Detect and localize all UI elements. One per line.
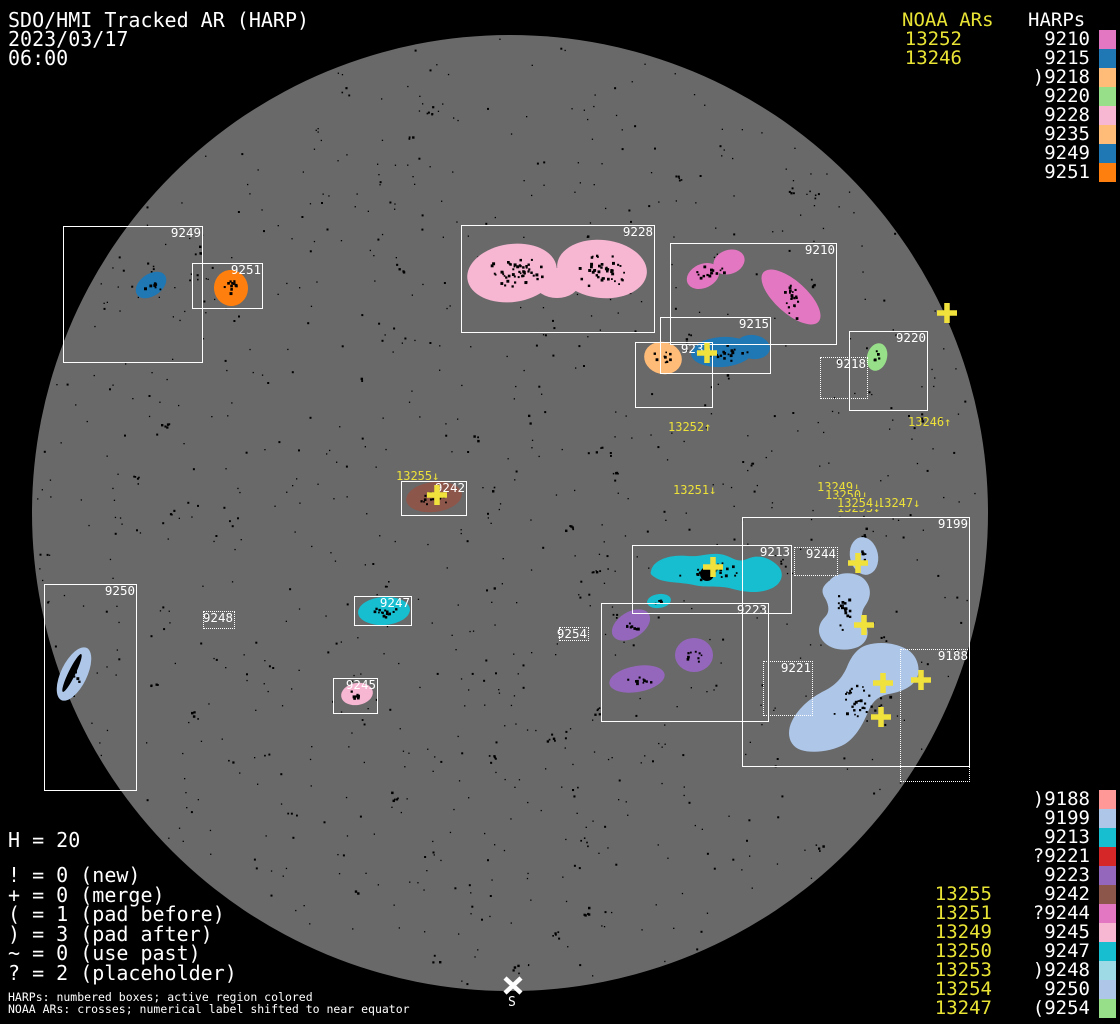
flag-legend: ! = 0 (new)+ = 0 (merge)( = 1 (pad befor… <box>8 866 237 983</box>
harp-box-label: 9242 <box>435 482 465 494</box>
legend-harp-number: (9254 <box>992 999 1090 1018</box>
harp-color-swatch <box>1099 828 1116 847</box>
harp-box-label: 9244 <box>806 548 836 560</box>
harp-box-label: 9215 <box>739 318 769 330</box>
harp-solar-plot: SDO/HMI Tracked AR (HARP) 2023/03/17 06:… <box>0 0 1120 1024</box>
harp-box-9249: 9249 <box>63 226 203 363</box>
harp-box-label: 9251 <box>231 264 261 276</box>
harp-color-swatch <box>1099 980 1116 999</box>
harp-color-swatch <box>1099 790 1116 809</box>
harp-color-swatch <box>1099 809 1116 828</box>
flag-legend-line: ? = 2 (placeholder) <box>8 964 237 984</box>
harp-color-swatch <box>1099 106 1116 125</box>
harp-box-9254: 9254 <box>559 627 589 641</box>
harp-box-9188: 9188 <box>900 649 970 782</box>
legend-noaa-number <box>859 68 962 87</box>
harp-box-9245: 9245 <box>333 678 378 714</box>
noaa-ar-label: 13246↑ <box>908 416 951 428</box>
harp-box-label: 9199 <box>938 518 968 530</box>
harp-legend-top: 132529210132469215)921892209228923592499… <box>859 30 1116 182</box>
harp-box-label: 9228 <box>623 226 653 238</box>
legend-row: 9251 <box>859 163 1116 182</box>
harp-box-9235: 9235 <box>635 342 713 408</box>
harp-color-swatch <box>1099 961 1116 980</box>
harp-box-9250: 9250 <box>44 584 137 791</box>
legend-noaa-number: 13246 <box>859 49 962 68</box>
legend-row: 13247(9254 <box>889 999 1116 1018</box>
legend-noaa-number <box>889 790 992 809</box>
noaa-ar-label: 13252↑ <box>668 421 711 433</box>
harp-box-label: 9254 <box>557 628 587 640</box>
noaa-ar-label: 13255↓ <box>396 470 439 482</box>
harp-color-swatch <box>1099 866 1116 885</box>
harp-box-label: 9188 <box>938 650 968 662</box>
legend-noaa-number: 13247 <box>889 999 992 1018</box>
harp-legend-bottom: )918891999213?9221922313255924213251?924… <box>889 790 1116 1018</box>
legend-noaa-number <box>859 125 962 144</box>
time-label: 06:00 <box>8 49 68 68</box>
harp-box-label: 9235 <box>681 343 711 355</box>
south-pole-label: S <box>508 996 516 1009</box>
harp-color-swatch <box>1099 942 1116 961</box>
footnotes: HARPs: numbered boxes; active region col… <box>8 991 410 1015</box>
harp-color-swatch <box>1099 144 1116 163</box>
harp-box-label: 9248 <box>203 612 233 624</box>
harp-color-swatch <box>1099 163 1116 182</box>
harp-box-label: 9221 <box>781 662 811 674</box>
harp-box-label: 9220 <box>896 332 926 344</box>
noaa-ar-label: 13251↓ <box>673 484 716 496</box>
legend-noaa-number <box>859 106 962 125</box>
harp-color-swatch <box>1099 923 1116 942</box>
harp-box-9251: 9251 <box>192 263 263 309</box>
legend-noaa-number <box>859 87 962 106</box>
harp-box-9221: 9221 <box>763 661 813 716</box>
legend-noaa-number <box>859 144 962 163</box>
harp-box-label: 9210 <box>805 244 835 256</box>
harp-color-swatch <box>1099 904 1116 923</box>
harp-color-swatch <box>1099 125 1116 144</box>
harp-color-swatch <box>1099 999 1116 1018</box>
annotation-overlay: SDO/HMI Tracked AR (HARP) 2023/03/17 06:… <box>0 0 1120 1024</box>
harp-color-swatch <box>1099 49 1116 68</box>
harp-box-9244: 9244 <box>794 547 838 576</box>
harp-box-label: 9247 <box>380 597 410 609</box>
harp-count-line: H = 20 <box>8 831 80 851</box>
legend-noaa-number <box>859 163 962 182</box>
harp-box-label: 9250 <box>105 585 135 597</box>
harp-box-9218: 9218 <box>820 357 868 399</box>
harp-color-swatch <box>1099 30 1116 49</box>
harp-color-swatch <box>1099 885 1116 904</box>
harp-box-9228: 9228 <box>461 225 655 333</box>
harp-box-9242: 9242 <box>401 481 467 516</box>
legend-noaa-number <box>889 828 992 847</box>
harp-box-label: 9218 <box>836 358 866 370</box>
footnote-line: NOAA ARs: crosses; numerical label shift… <box>8 1003 410 1015</box>
harp-box-label: 9245 <box>346 679 376 691</box>
legend-noaa-number <box>889 847 992 866</box>
harp-color-swatch <box>1099 847 1116 866</box>
harp-box-label: 9249 <box>171 227 201 239</box>
harp-box-9247: 9247 <box>354 596 412 626</box>
legend-noaa-number <box>889 809 992 828</box>
legend-harp-number: 9251 <box>962 163 1090 182</box>
harp-color-swatch <box>1099 68 1116 87</box>
harp-box-9248: 9248 <box>203 611 235 629</box>
noaa-ar-label: 13254↓ <box>837 497 880 509</box>
noaa-ar-label: 13247↓ <box>877 497 920 509</box>
harp-color-swatch <box>1099 87 1116 106</box>
